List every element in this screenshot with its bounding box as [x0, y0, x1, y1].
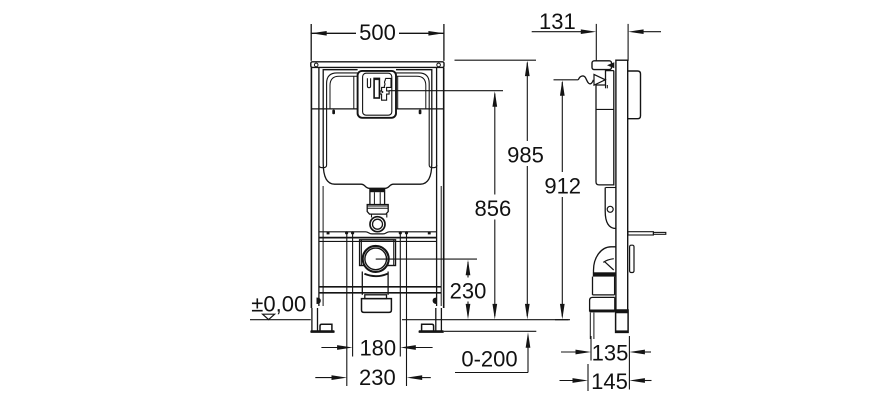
svg-text:0-200: 0-200 — [461, 347, 517, 372]
svg-text:985: 985 — [507, 143, 544, 168]
svg-text:230: 230 — [359, 365, 396, 390]
svg-text:230: 230 — [450, 278, 487, 303]
svg-text:±0,00: ±0,00 — [251, 292, 306, 317]
svg-text:500: 500 — [359, 20, 396, 45]
svg-text:145: 145 — [591, 369, 628, 394]
svg-text:180: 180 — [359, 335, 396, 360]
svg-text:135: 135 — [592, 340, 629, 365]
svg-text:856: 856 — [475, 196, 512, 221]
svg-text:912: 912 — [544, 173, 581, 198]
svg-text:131: 131 — [539, 9, 576, 34]
